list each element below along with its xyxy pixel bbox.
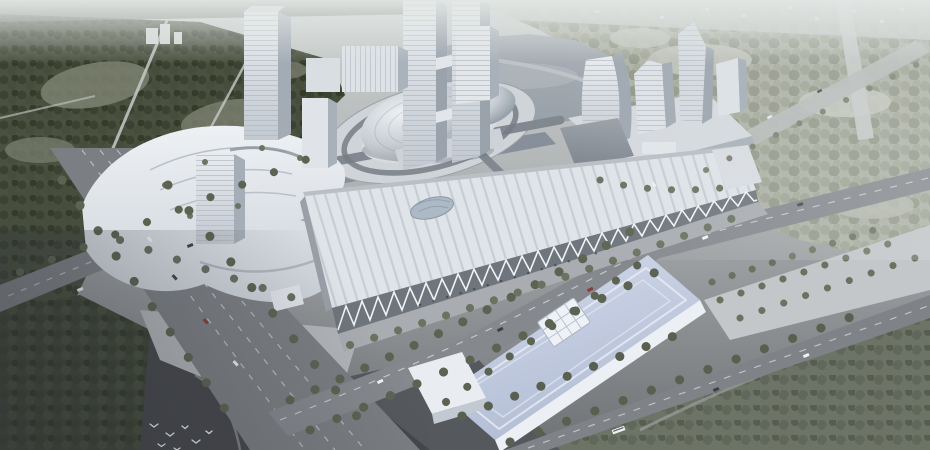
tower-c-side (328, 98, 337, 168)
rendering-canvas (0, 0, 930, 450)
right-haze (560, 0, 930, 260)
corner-vignette (0, 230, 430, 450)
aerial-rendering (0, 0, 930, 450)
